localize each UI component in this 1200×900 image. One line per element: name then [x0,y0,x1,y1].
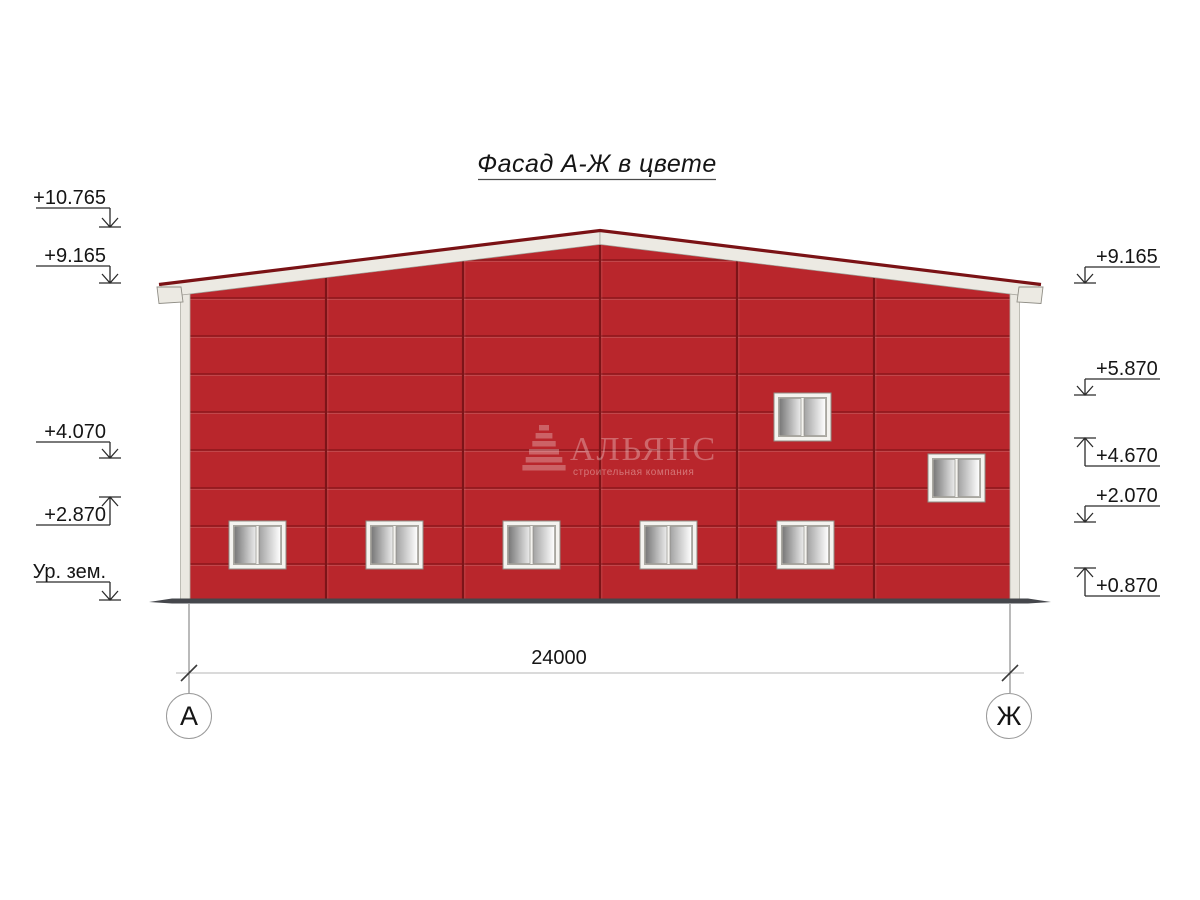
level-value: +10.765 [33,187,106,209]
corner-trim-left [181,289,191,599]
level-value: +5.870 [1096,358,1158,380]
window-bay6-middle [928,454,985,502]
level-mark: +10.765 [33,187,121,227]
axis-label-left: А [180,701,198,731]
window-bay5-bottom [777,521,834,569]
level-value: +2.870 [44,504,106,526]
level-value: Ур. зем. [33,561,106,583]
level-mark: +9.165 [1074,246,1160,283]
building: АЛЬЯНС строительная компания [157,224,1043,599]
level-value: +9.165 [1096,246,1158,268]
level-mark: +2.870 [36,497,121,526]
ground-line [149,599,1051,604]
level-value: +0.870 [1096,575,1158,597]
level-value: +2.070 [1096,485,1158,507]
window-bay4-bottom [640,521,697,569]
watermark-name: АЛЬЯНС [570,431,717,468]
dimension-group: 24000 А Ж [167,604,1032,739]
watermark-subtitle: строительная компания [573,467,694,478]
level-value: +4.070 [44,421,106,443]
window-bay2-bottom [366,521,423,569]
axis-label-right: Ж [997,701,1022,731]
elevation-markers-right: +9.165 +5.870 +4.670 +2.070 +0.870 [1074,246,1160,597]
elevation-markers-left: +10.765 +9.165 +4.070 +2.870 Ур. зем. [33,187,121,600]
dimension-value: 24000 [531,647,587,669]
level-mark: +4.070 [36,421,121,458]
window-bay3-bottom [503,521,560,569]
window-bay5-upper [774,393,831,441]
gutter-left [157,287,183,304]
gutter-right [1017,287,1043,304]
level-value: +4.670 [1096,445,1158,467]
facade-drawing: Фасад А-Ж в цвете [0,0,1200,900]
level-value: +9.165 [44,245,106,267]
drawing-title: Фасад А-Ж в цвете [477,150,716,178]
level-mark: +4.670 [1074,438,1160,467]
level-mark: +9.165 [36,245,121,283]
level-mark: +5.870 [1074,358,1160,395]
level-mark: Ур. зем. [33,561,121,600]
level-mark: +0.870 [1074,568,1160,597]
corner-trim-right [1010,289,1020,599]
facade-drawing-page: Фасад А-Ж в цвете [0,0,1200,900]
window-bay1-bottom [229,521,286,569]
level-mark: +2.070 [1074,485,1160,522]
